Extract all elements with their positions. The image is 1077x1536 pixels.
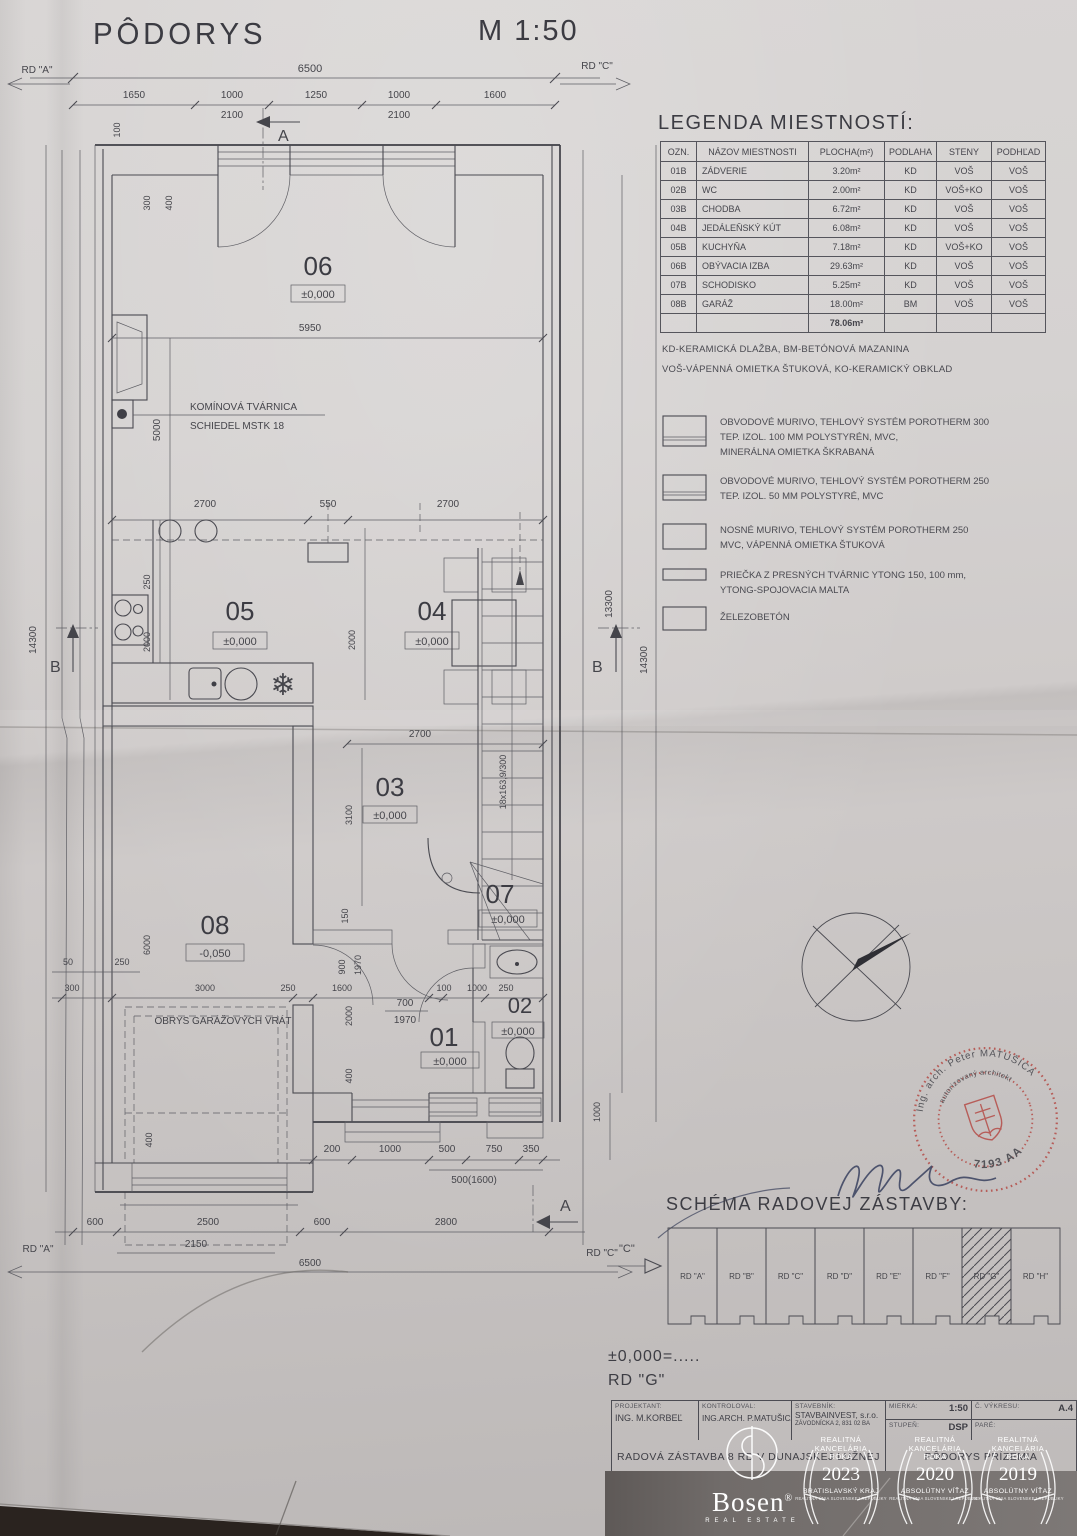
material-swatch-porotherm250 xyxy=(662,474,708,502)
material-swatch-concrete xyxy=(662,606,708,632)
stair-note: 18x163,9/300 xyxy=(498,755,508,810)
legend-note: KD-KERAMICKÁ DLAŽBA, BM-BETÓNOVÁ MAZANIN… xyxy=(662,340,909,359)
dim: 400 xyxy=(164,195,174,210)
table-row: 04BJEDÁLEŇSKÝ KÚT6.08m²KDVOŠVOŠ xyxy=(661,219,1046,238)
section-arrow xyxy=(536,1215,550,1229)
scanned-floorplan-page: PÔDORYS M 1:50 A 6 xyxy=(0,0,1077,1536)
dim: 1000 xyxy=(592,1102,602,1122)
field-label: KONTROLOVAL: xyxy=(702,1403,788,1410)
room-number: 01 xyxy=(430,1022,459,1052)
dim: 3000 xyxy=(195,983,215,993)
axis-marker: "C" xyxy=(619,1243,635,1255)
level-tag: ±0,000 xyxy=(301,289,335,301)
section-label-b: B xyxy=(592,659,603,676)
table-row: 01BZÁDVERIE3.20m²KDVOŠVOŠ xyxy=(661,162,1046,181)
basin xyxy=(225,668,257,700)
dim: 6500 xyxy=(298,63,322,75)
dim: 2700 xyxy=(409,729,432,740)
table-row: 06BOBÝVACIA IZBA29.63m²KDVOŠVOŠ xyxy=(661,257,1046,276)
dim: 250 xyxy=(280,983,295,993)
field-label: MIERKA: xyxy=(889,1403,918,1410)
level-tag: ±0,000 xyxy=(501,1026,535,1038)
plot-boundary-line xyxy=(62,150,67,1245)
level-tag: ±0,000 xyxy=(491,914,525,926)
chair xyxy=(444,558,478,592)
dim: 6000 xyxy=(142,935,152,955)
material-item: ŽELEZOBETÓN xyxy=(662,606,790,632)
dim: 2100 xyxy=(388,110,411,121)
toilet-tank xyxy=(506,1069,534,1088)
room-number: 07 xyxy=(486,879,515,909)
dim: 600 xyxy=(87,1217,104,1228)
level-tag: -0,050 xyxy=(199,948,230,960)
toilet xyxy=(506,1037,534,1069)
field-label: Č. VÝKRESU: xyxy=(975,1403,1019,1410)
chimney-note: SCHIEDEL MSTK 18 xyxy=(190,421,285,432)
table-row: 08BGARÁŽ18.00m²BMVOŠVOŠ xyxy=(661,295,1046,314)
unit-label: RD "A" xyxy=(680,1272,705,1281)
dining-table xyxy=(452,600,516,666)
kontroloval-value: ING.ARCH. P.MATUŠICA xyxy=(702,1413,788,1423)
unit-label: RD "G" xyxy=(974,1272,1000,1281)
schema-title: SCHÉMA RADOVEJ ZÁSTAVBY: xyxy=(666,1194,968,1215)
axis-marker: RD "A" xyxy=(23,1244,54,1255)
dim: 2700 xyxy=(437,499,460,510)
level-tag: ±0,000 xyxy=(415,636,449,648)
window xyxy=(489,1098,541,1116)
dim: 500(1600) xyxy=(451,1175,497,1186)
table-row: 07BSCHODISKO5.25m²KDVOŠVOŠ xyxy=(661,276,1046,295)
table-row: 03BCHODBA6.72m²KDVOŠVOŠ xyxy=(661,200,1046,219)
room-number: 04 xyxy=(418,596,447,626)
level-tag: ±0,000 xyxy=(223,636,257,648)
unit-reference-note: RD "G" xyxy=(608,1372,665,1390)
dim: 300 xyxy=(64,983,79,993)
projektant-value: ING. M.KORBEĽ xyxy=(615,1413,695,1423)
partition-wall xyxy=(313,930,392,944)
dim: 3100 xyxy=(344,805,354,825)
load-bearing-wall xyxy=(293,1005,313,1093)
dim: 700 xyxy=(397,998,414,1009)
room-legend-table: OZN.NÁZOV MIESTNOSTIPLOCHA(m²) PODLAHAST… xyxy=(660,141,1046,333)
stair-direction-arrow xyxy=(516,570,524,585)
dim: 400 xyxy=(344,1068,354,1083)
room-number: 06 xyxy=(304,251,333,281)
dim: 1970 xyxy=(394,1015,417,1026)
room-number: 02 xyxy=(508,993,532,1018)
dim: 150 xyxy=(340,908,350,923)
svg-text:Ing. arch. Peter MATUŠICA: Ing. arch. Peter MATUŠICA xyxy=(908,1042,1039,1116)
dim: 6500 xyxy=(299,1258,322,1269)
dim: 400 xyxy=(144,1132,154,1147)
floorplan-drawing: A 6500 RD "A" RD "C" 1650 1000 1250 1000… xyxy=(0,0,660,1290)
dim: 2000 xyxy=(142,632,152,652)
bosen-logo-icon xyxy=(700,1424,805,1482)
load-bearing-wall xyxy=(103,706,313,726)
dim: 2800 xyxy=(435,1217,458,1228)
dim: 14300 xyxy=(639,646,650,674)
table-total-row: 78.06m² xyxy=(661,314,1046,333)
dim: 100 xyxy=(436,983,451,993)
paper-edge xyxy=(0,1504,450,1536)
stamp-architect-name: Ing. arch. Peter MATUŠICA xyxy=(908,1042,1039,1116)
unit-label: RD "F" xyxy=(925,1272,950,1281)
partition-wall xyxy=(473,944,485,968)
dim: 5000 xyxy=(152,418,163,441)
dim: 1000 xyxy=(221,90,244,101)
dim: 250 xyxy=(114,957,129,967)
bosen-subtitle: REAL ESTATE xyxy=(700,1518,805,1524)
dim: 200 xyxy=(324,1144,341,1155)
material-item: OBVODOVÉ MURIVO, TEHLOVÝ SYSTÉM POROTHER… xyxy=(662,415,989,460)
stavebnik-address: ZÁVODNÍCKA 2, 831 02 BA xyxy=(795,1421,882,1427)
door-swing xyxy=(218,175,290,247)
level-tag: ±0,000 xyxy=(433,1056,467,1068)
dim: 750 xyxy=(486,1144,503,1155)
material-item: NOSNÉ MURIVO, TEHLOVÝ SYSTÉM POROTHERM 2… xyxy=(662,523,968,553)
mierka-value: 1:50 xyxy=(949,1403,968,1414)
concrete-pillar xyxy=(308,543,348,562)
section-label-b: B xyxy=(50,659,61,676)
dim: 14300 xyxy=(28,626,39,654)
dim: 5950 xyxy=(299,323,322,334)
legend-title: LEGENDA MIESTNOSTÍ: xyxy=(658,112,914,135)
legend-note: VOŠ-VÁPENNÁ OMIETKA ŠTUKOVÁ, KO-KERAMICK… xyxy=(662,360,952,379)
bosen-wordmark: Bosen® xyxy=(700,1487,805,1518)
dim: 1600 xyxy=(332,983,352,993)
section-arrow xyxy=(610,624,622,638)
room-number: 05 xyxy=(226,596,255,626)
room-number: 03 xyxy=(376,772,405,802)
dim: 600 xyxy=(314,1217,331,1228)
dim: 350 xyxy=(523,1144,540,1155)
material-swatch-partition xyxy=(662,568,708,582)
material-swatch-load-bearing xyxy=(662,523,708,551)
partition-wall xyxy=(448,930,543,944)
section-arrow xyxy=(67,624,79,638)
unit-label: RD "B" xyxy=(729,1272,754,1281)
unit-label: RD "E" xyxy=(876,1272,901,1281)
dim: 2700 xyxy=(194,499,217,510)
chimney-note: KOMÍNOVÁ TVÁRNICA xyxy=(190,400,297,413)
north-compass xyxy=(795,905,920,1030)
washbasin-counter xyxy=(490,946,543,978)
unit-label: RD "C" xyxy=(778,1272,803,1281)
axis-marker: RD "C" xyxy=(581,61,613,72)
vykres-value: A.4 xyxy=(1058,1403,1073,1414)
dim: 1000 xyxy=(379,1144,402,1155)
table-row: 05BKUCHYŇA7.18m²KDVOŠ+KOVOŠ xyxy=(661,238,1046,257)
dim: 2000 xyxy=(344,1006,354,1026)
svg-text:autorizovaný architekt: autorizovaný architekt xyxy=(931,1058,1016,1107)
dim: 250 xyxy=(142,574,152,589)
dim: 1000 xyxy=(467,983,487,993)
section-label-a: A xyxy=(278,128,289,145)
room-number: 08 xyxy=(201,910,230,940)
door-swing xyxy=(383,175,455,247)
dim: 100 xyxy=(112,122,122,137)
field-label: STAVEBNÍK: xyxy=(795,1403,882,1410)
dim: 550 xyxy=(320,499,337,510)
dim: 250 xyxy=(498,983,513,993)
award-badge-2023: REALITNÁKANCELÁRIAROKA 2023 BRATISLAVSKÝ… xyxy=(791,1428,891,1501)
dim: 50 xyxy=(63,957,73,967)
material-item: PRIEČKA Z PRESNÝCH TVÁRNIC YTONG 150, 10… xyxy=(662,568,966,598)
dim: 2100 xyxy=(221,110,244,121)
stavebnik-value: STAVBAINVEST, s.r.o. xyxy=(795,1410,882,1420)
plot-boundary-line xyxy=(80,150,84,1245)
dim: 1000 xyxy=(388,90,411,101)
chair xyxy=(444,670,478,704)
unit-label: RD "D" xyxy=(827,1272,852,1281)
section-label-a: A xyxy=(560,1198,571,1215)
award-badge-2019: REALITNÁKANCELÁRIAROKA 2019 ABSOLÚTNY VÍ… xyxy=(968,1428,1068,1501)
load-bearing-wall xyxy=(293,726,313,944)
dim: 900 xyxy=(337,959,347,974)
dim: 1970 xyxy=(353,955,363,975)
field-label: PROJEKTANT: xyxy=(615,1403,695,1410)
cooktop-burner xyxy=(195,520,217,542)
dim: 1250 xyxy=(305,90,328,101)
material-item: OBVODOVÉ MURIVO, TEHLOVÝ SYSTÉM POROTHER… xyxy=(662,474,989,504)
freezer-icon: ❄ xyxy=(270,669,295,702)
schema-c-marker: "C" xyxy=(605,1240,667,1282)
dim: 1600 xyxy=(484,90,507,101)
row-house-scheme: RD "A" RD "B" RD "C" RD "D" RD "E" RD "F… xyxy=(664,1226,1068,1342)
award-year: 2019 xyxy=(968,1464,1068,1486)
dim: 500 xyxy=(439,1144,456,1155)
dim: 1650 xyxy=(123,90,146,101)
unit-label: RD "H" xyxy=(1023,1272,1048,1281)
level-reference-note: ±0,000=..... xyxy=(608,1348,700,1366)
table-surface xyxy=(0,1506,448,1536)
table-header-row: OZN.NÁZOV MIESTNOSTIPLOCHA(m²) PODLAHAST… xyxy=(661,142,1046,162)
dim: 2000 xyxy=(347,630,357,650)
dim: 2500 xyxy=(197,1217,220,1228)
stamp-role: autorizovaný architekt xyxy=(931,1058,1016,1107)
chair xyxy=(492,670,526,704)
level-tag: ±0,000 xyxy=(373,810,407,822)
table-row: 02BWC2.00m²KDVOŠ+KOVOŠ xyxy=(661,181,1046,200)
axis-marker: RD "A" xyxy=(22,65,53,76)
award-year: 2023 xyxy=(791,1464,891,1486)
total-area: 78.06m² xyxy=(809,314,885,333)
dim: 13300 xyxy=(604,590,615,618)
material-swatch-porotherm300 xyxy=(662,415,708,449)
dim: 2150 xyxy=(185,1239,208,1250)
dim: 300 xyxy=(142,195,152,210)
entry-step xyxy=(487,1122,543,1138)
pencil-mark xyxy=(276,1481,296,1535)
bosen-logo: Bosen® REAL ESTATE xyxy=(700,1424,805,1524)
window xyxy=(429,1098,477,1116)
